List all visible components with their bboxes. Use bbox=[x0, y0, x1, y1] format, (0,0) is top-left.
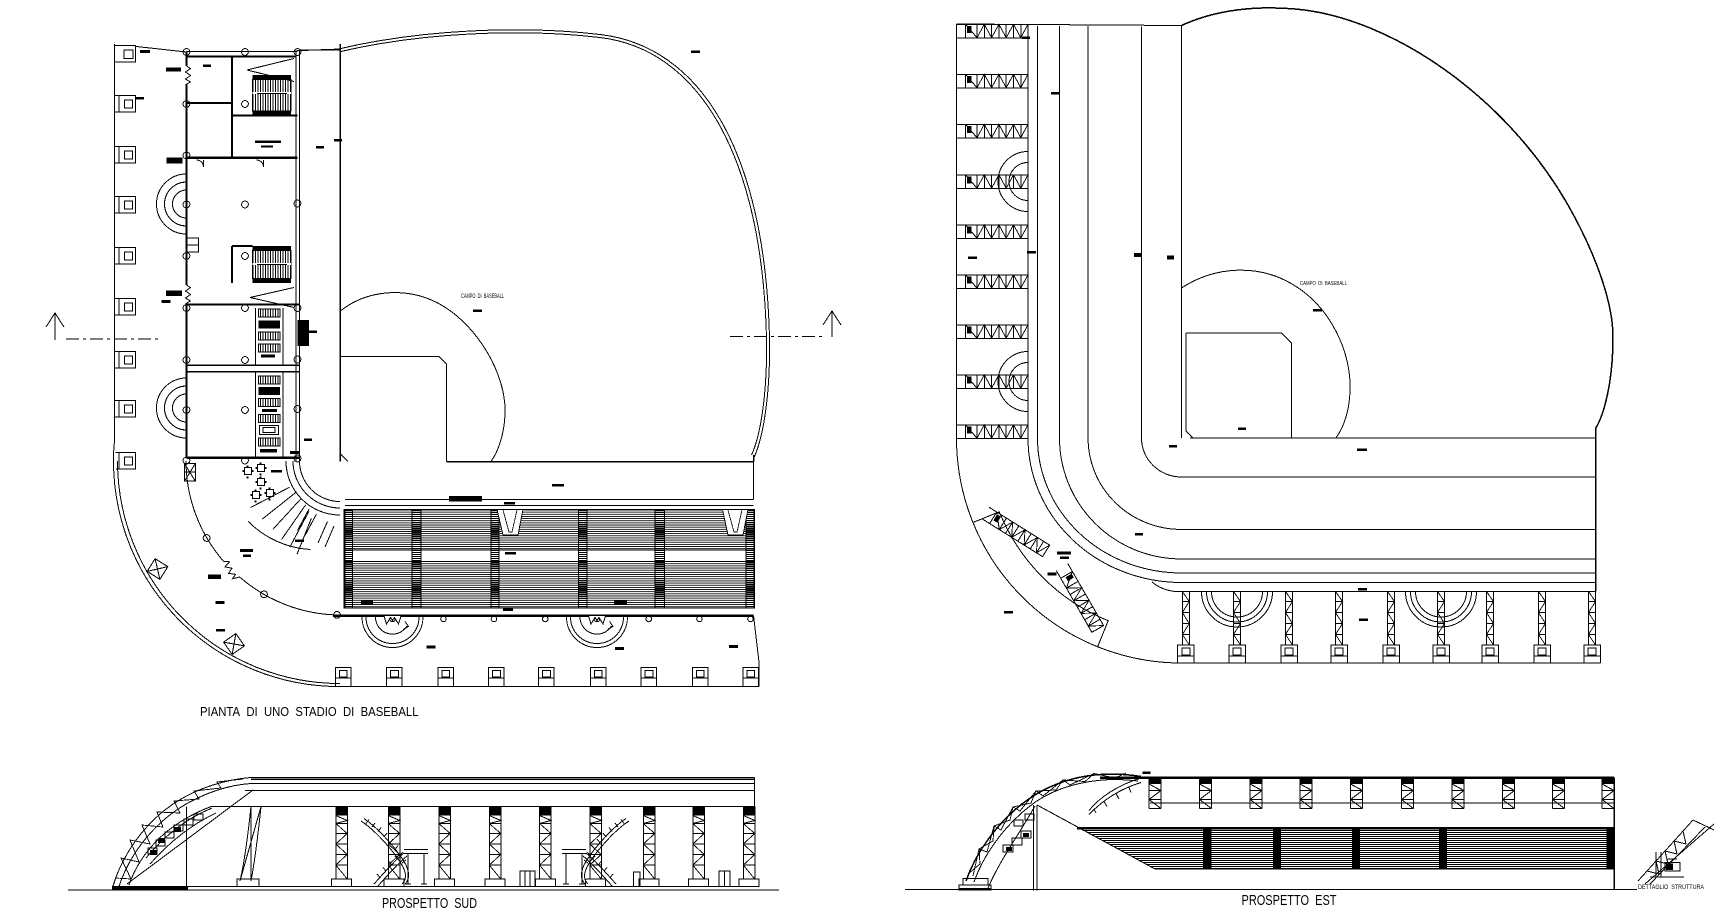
svg-text:PROSPETTO SUD: PROSPETTO SUD bbox=[382, 895, 477, 912]
svg-text:PROSPETTO EST: PROSPETTO EST bbox=[1242, 893, 1337, 909]
svg-text:PIANTA DI UNO STADIO DI B: PIANTA DI UNO STADIO DI BASEBALL bbox=[200, 704, 419, 719]
svg-text:CAMPO DI BASEBALL: CAMPO DI BASEBALL bbox=[461, 294, 504, 300]
svg-text:DETTAGLIO STRUTTURA: DETTAGLIO STRUTTURA bbox=[1638, 885, 1704, 891]
svg-text:CAMPO DI BASEBALL: CAMPO DI BASEBALL bbox=[1300, 281, 1347, 287]
